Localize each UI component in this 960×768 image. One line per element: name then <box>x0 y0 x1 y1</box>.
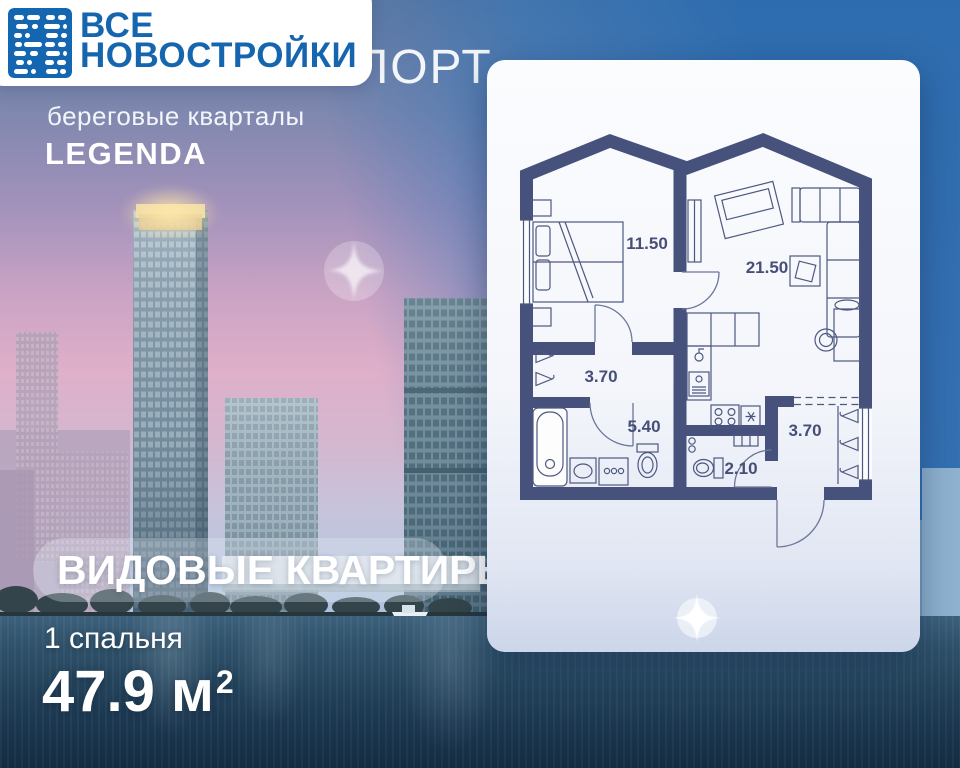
floor-plan-card: 11.50 21.50 3.70 5.40 2.10 3.70 <box>487 60 920 652</box>
logo-wordmark: ВСЕ НОВОСТРОЙКИ <box>80 11 357 71</box>
logo-card: ВСЕ НОВОСТРОЙКИ <box>0 0 372 86</box>
headline-text: ВИДОВЫЕ КВАРТИРЫ <box>33 538 447 602</box>
sparkle-icon <box>316 233 392 309</box>
area-superscript: 2 <box>216 664 234 700</box>
tower-crown-glow <box>118 184 222 242</box>
logo-icon <box>8 8 72 78</box>
entry-hall-area-label: 3.70 <box>788 421 821 440</box>
bathroom-area-label: 5.40 <box>627 417 660 436</box>
hallway-area-label: 3.70 <box>584 367 617 386</box>
kitchen-fixtures <box>687 313 760 428</box>
wc-area-label: 2.10 <box>724 459 757 478</box>
card-sparkle-icon <box>673 594 721 642</box>
bedrooms-label: 1 спальня <box>44 622 183 656</box>
developer-logo: LEGENDA <box>45 136 207 172</box>
ad-creative: СЕВЕРНЫЙ ПОРТ ВСЕ Н <box>0 0 960 768</box>
headline-banner: ВИДОВЫЕ КВАРТИРЫ <box>33 538 447 602</box>
floor-plan: 11.50 21.50 3.70 5.40 2.10 3.70 <box>487 60 920 652</box>
bedroom-area-label: 11.50 <box>626 234 668 253</box>
overhead-storage <box>794 398 859 405</box>
outer-walls <box>527 140 866 494</box>
logo-line2: НОВОСТРОЙКИ <box>80 41 357 71</box>
living-area-label: 21.50 <box>746 258 789 277</box>
project-subtitle: береговые кварталы <box>47 101 305 132</box>
area-value: 47.9 м <box>42 659 214 724</box>
area-label: 47.9 м2 <box>42 658 234 725</box>
